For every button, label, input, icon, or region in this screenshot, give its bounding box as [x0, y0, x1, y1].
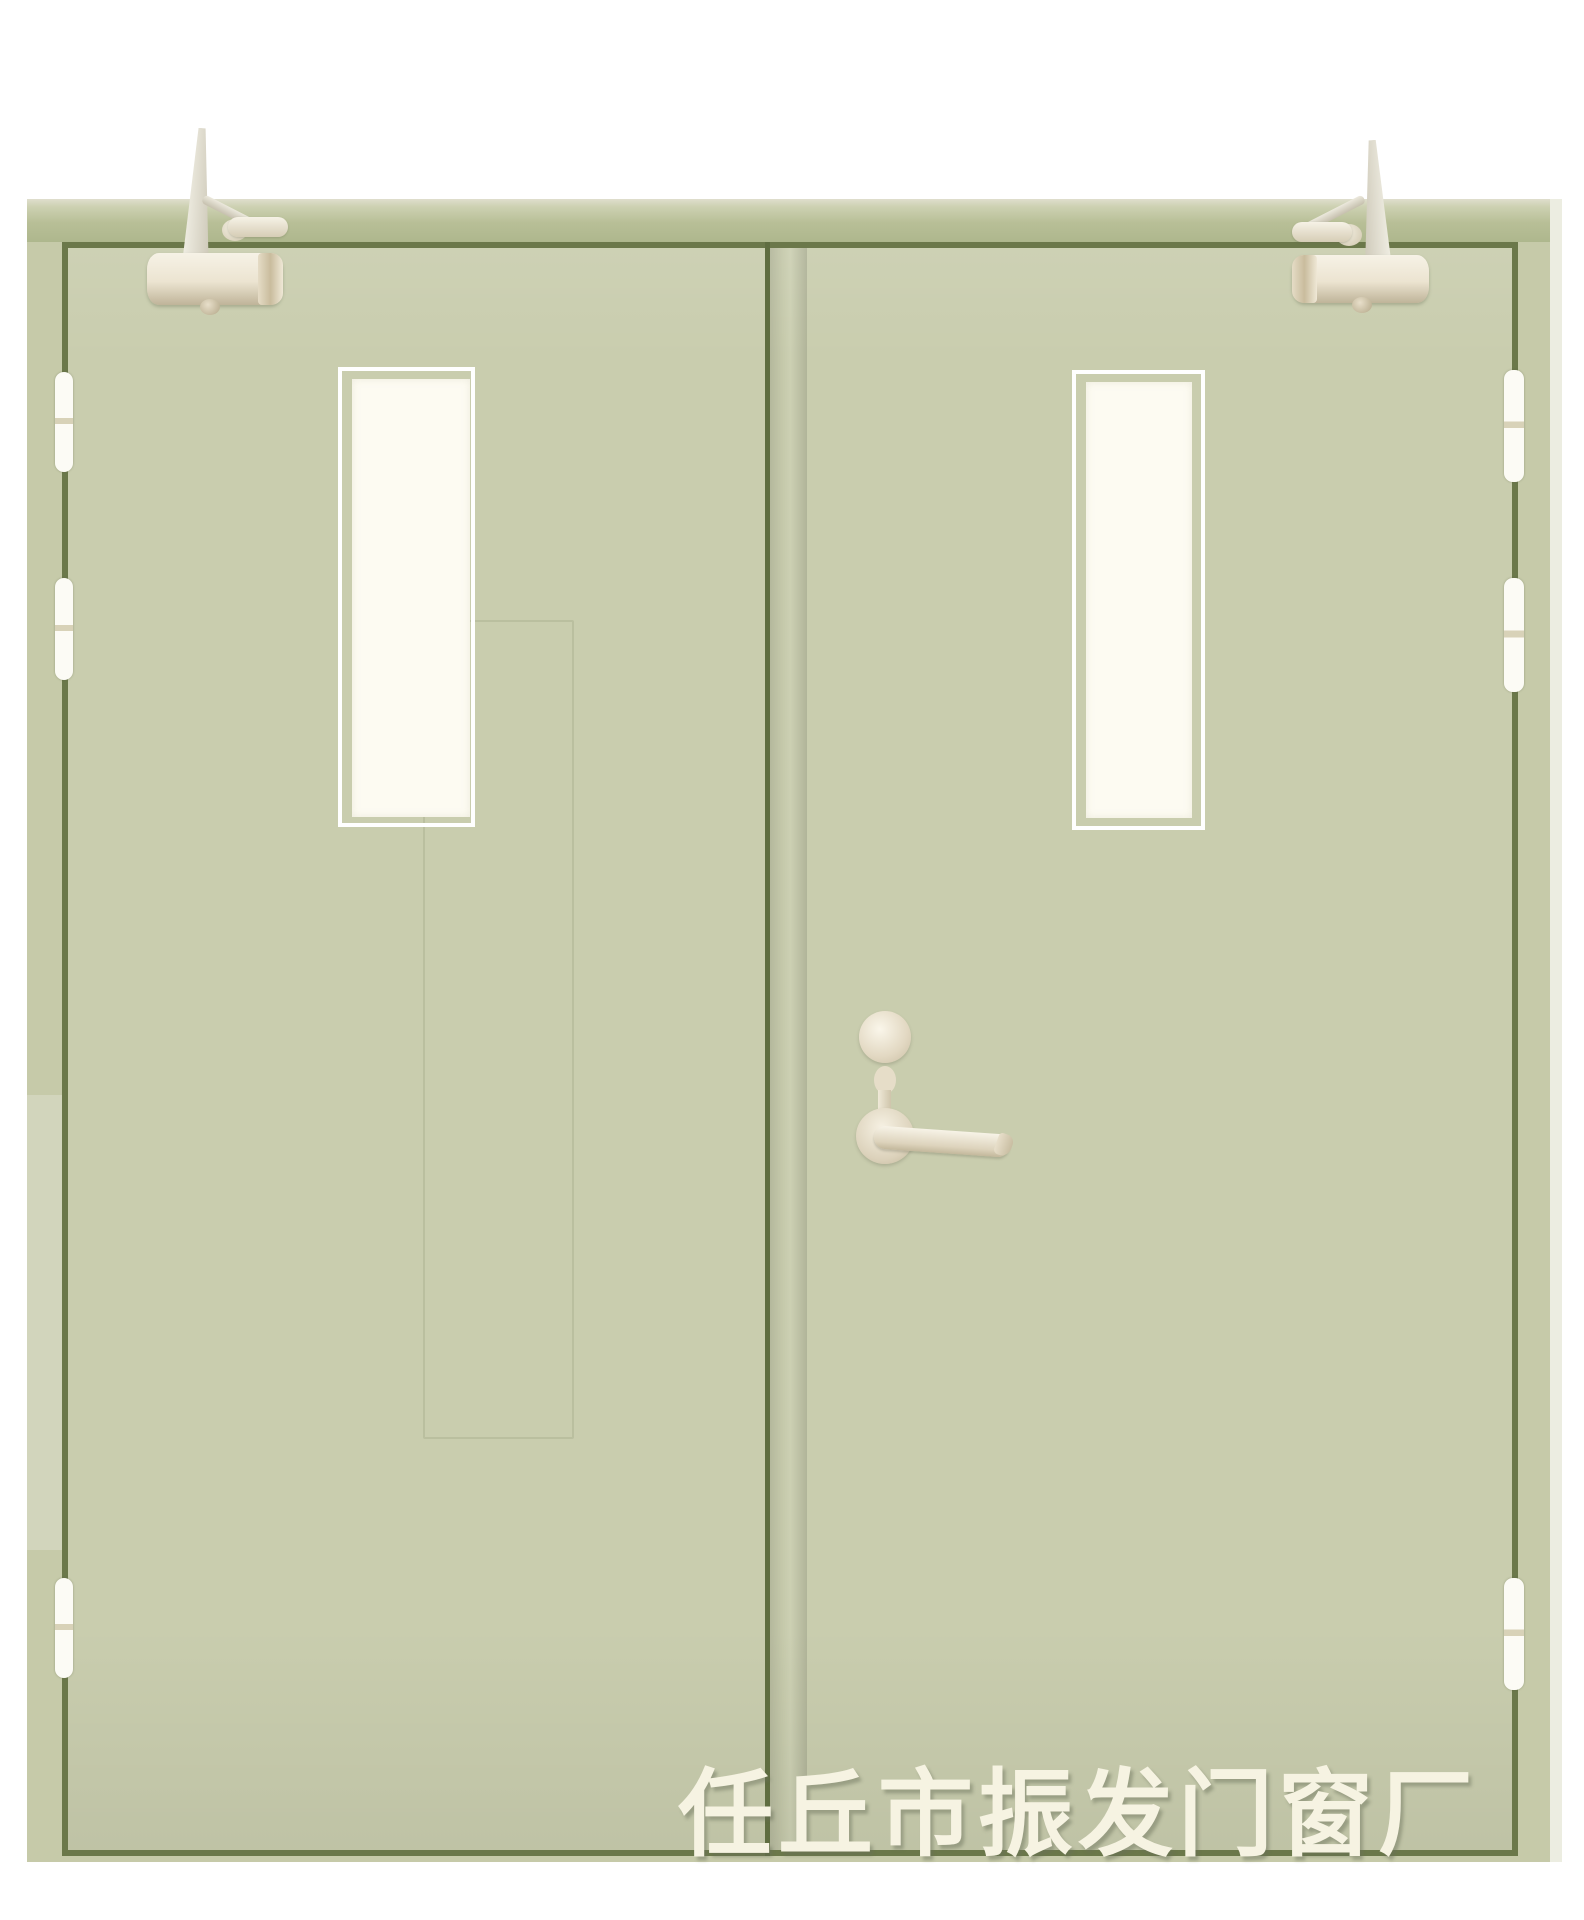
door-closer-right-bracket	[1292, 222, 1352, 242]
hinge-left-bottom	[55, 1578, 73, 1678]
door-frame-right-edge-highlight	[1550, 199, 1562, 1862]
door-closer-left-body	[147, 253, 283, 305]
vision-panel-glass-right	[1086, 382, 1192, 818]
hinge-left-top	[55, 372, 73, 472]
door-closer-left-valve	[200, 299, 220, 315]
door-closer-left-bracket	[228, 217, 288, 237]
hinge-right-top	[1504, 370, 1524, 482]
hinge-right-middle	[1504, 578, 1524, 692]
door-closer-left-end-cap	[258, 253, 283, 305]
hinge-left-middle	[55, 578, 73, 680]
door-closer-right-body	[1292, 255, 1429, 303]
vision-panel-glass-left	[352, 379, 470, 817]
door-closer-right-end-cap	[1292, 255, 1317, 303]
factory-watermark-text: 任丘市振发门窗厂	[678, 1738, 1478, 1875]
hinge-right-bottom	[1504, 1578, 1524, 1690]
astragal-strip	[770, 248, 807, 1850]
door-frame-left-highlight	[27, 1095, 62, 1550]
meeting-stile-line	[765, 242, 770, 1856]
product-photo-canvas: 任丘市振发门窗厂	[0, 0, 1584, 1920]
door-closer-right-valve	[1352, 297, 1372, 313]
cylinder-thumbturn-knob	[859, 1011, 911, 1063]
